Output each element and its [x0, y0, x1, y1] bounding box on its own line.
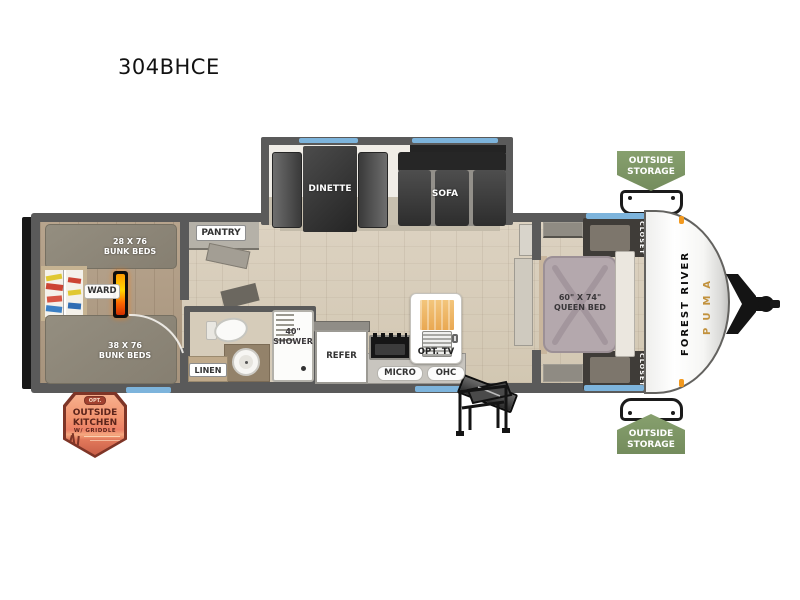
slideout-window-left [299, 138, 358, 143]
marker-light-bottom [679, 379, 684, 387]
puma-logo: PUMA [702, 258, 716, 350]
model-title: 304BHCE [118, 55, 220, 79]
bedroom-wall-bottom [532, 350, 541, 384]
hitch [726, 272, 780, 336]
linen-label: LINEN [189, 363, 227, 377]
wardrobe-divider [63, 270, 66, 317]
grass-silhouette [72, 433, 76, 451]
closet-top-cushion [590, 225, 630, 251]
bunk-top-label: 28 X 76 BUNK BEDS [75, 237, 185, 256]
clothes-item [46, 274, 63, 282]
sofa-back [398, 152, 506, 172]
bunkroom-wall-top [180, 222, 189, 300]
entertainment-cabinet-lower [514, 258, 533, 346]
headboard [615, 251, 635, 357]
queen-size: 60" X 74" [543, 293, 617, 303]
rack-bolt [628, 411, 632, 415]
clothes-item [47, 295, 62, 302]
tv-wood-panel [420, 300, 454, 330]
entertainment-cabinet-upper [519, 224, 533, 256]
window-bedroom-bottom [584, 385, 644, 391]
outside-storage-badge-top: OUTSIDE STORAGE [617, 151, 685, 191]
ward-label: WARD [84, 284, 120, 299]
opt-tv-label: OPT. TV [410, 348, 462, 358]
shower [272, 310, 314, 382]
clothes-item [68, 277, 82, 284]
sofa-label: SOFA [415, 190, 475, 200]
wardrobe-open [41, 266, 87, 321]
badge-line: STORAGE [617, 440, 685, 451]
grass-silhouette [76, 436, 80, 451]
refer-label: REFER [315, 352, 368, 362]
closet-bottom-cushion [590, 357, 630, 383]
queen-bed-label: 60" X 74" QUEEN BED [543, 293, 617, 312]
rack-bolt [628, 196, 632, 200]
bunk-top-size: 28 X 76 [75, 237, 185, 247]
stove-knobs [373, 333, 407, 337]
shower-size: 40" [272, 327, 314, 337]
pantry-label: PANTRY [196, 225, 246, 241]
clothes-item [68, 289, 82, 296]
ohc-label: OHC [427, 366, 465, 381]
tv-handle [452, 334, 458, 343]
rack-bolt [671, 196, 675, 200]
bedroom-wall-top [532, 222, 541, 260]
bedroom-dresser-bottom [543, 364, 583, 382]
clothes-item [68, 302, 81, 309]
dinette-bench-right [358, 152, 388, 228]
dinette-bench-left [272, 152, 302, 228]
shower-label: 40" SHOWER [272, 327, 314, 346]
sunset-line [84, 436, 120, 437]
bunk-bottom-label: 38 X 76 BUNK BEDS [70, 341, 180, 360]
shower-name: SHOWER [272, 337, 314, 347]
stove [369, 335, 411, 360]
oven-window [375, 344, 405, 355]
clothes-item [46, 283, 64, 291]
sunset-line [90, 440, 120, 441]
forest-river-logo: FOREST RIVER [680, 246, 696, 360]
outside-kitchen-badge: OPT. OUTSIDE KITCHEN W/ GRIDDLE [63, 392, 127, 458]
opt-pill: OPT. [84, 396, 106, 405]
shower-drain [301, 366, 306, 371]
dinette-label: DINETTE [300, 185, 360, 195]
badge-line: STORAGE [617, 167, 685, 178]
outside-kitchen-line3: W/ GRIDDLE [63, 428, 127, 434]
window-bedroom-top [586, 213, 645, 219]
floorplan-page: 304BHCE DINETTE SOFA 28 X 76 BUNK BEDS [0, 0, 800, 600]
window-below-bunkroom [126, 387, 171, 393]
badge-line: OUTSIDE [617, 429, 685, 440]
queen-name: QUEEN BED [543, 303, 617, 313]
rack-bolt [671, 411, 675, 415]
bunk-bottom-size: 38 X 76 [70, 341, 180, 351]
sink-drain [245, 361, 248, 364]
sink [232, 348, 260, 376]
outside-kitchen-line1: OUTSIDE [63, 408, 127, 418]
bunk-bottom-name: BUNK BEDS [70, 351, 180, 361]
clothes-item [46, 305, 63, 313]
badge-line: OUTSIDE [617, 156, 685, 167]
outside-kitchen-line2: KITCHEN [63, 418, 127, 428]
slideout-window-right [412, 138, 498, 143]
marker-light-top [679, 216, 684, 224]
micro-label: MICRO [377, 366, 423, 381]
bedroom-dresser-top [543, 222, 583, 238]
bunk-top-name: BUNK BEDS [75, 247, 185, 257]
sofa-seat [473, 170, 506, 226]
